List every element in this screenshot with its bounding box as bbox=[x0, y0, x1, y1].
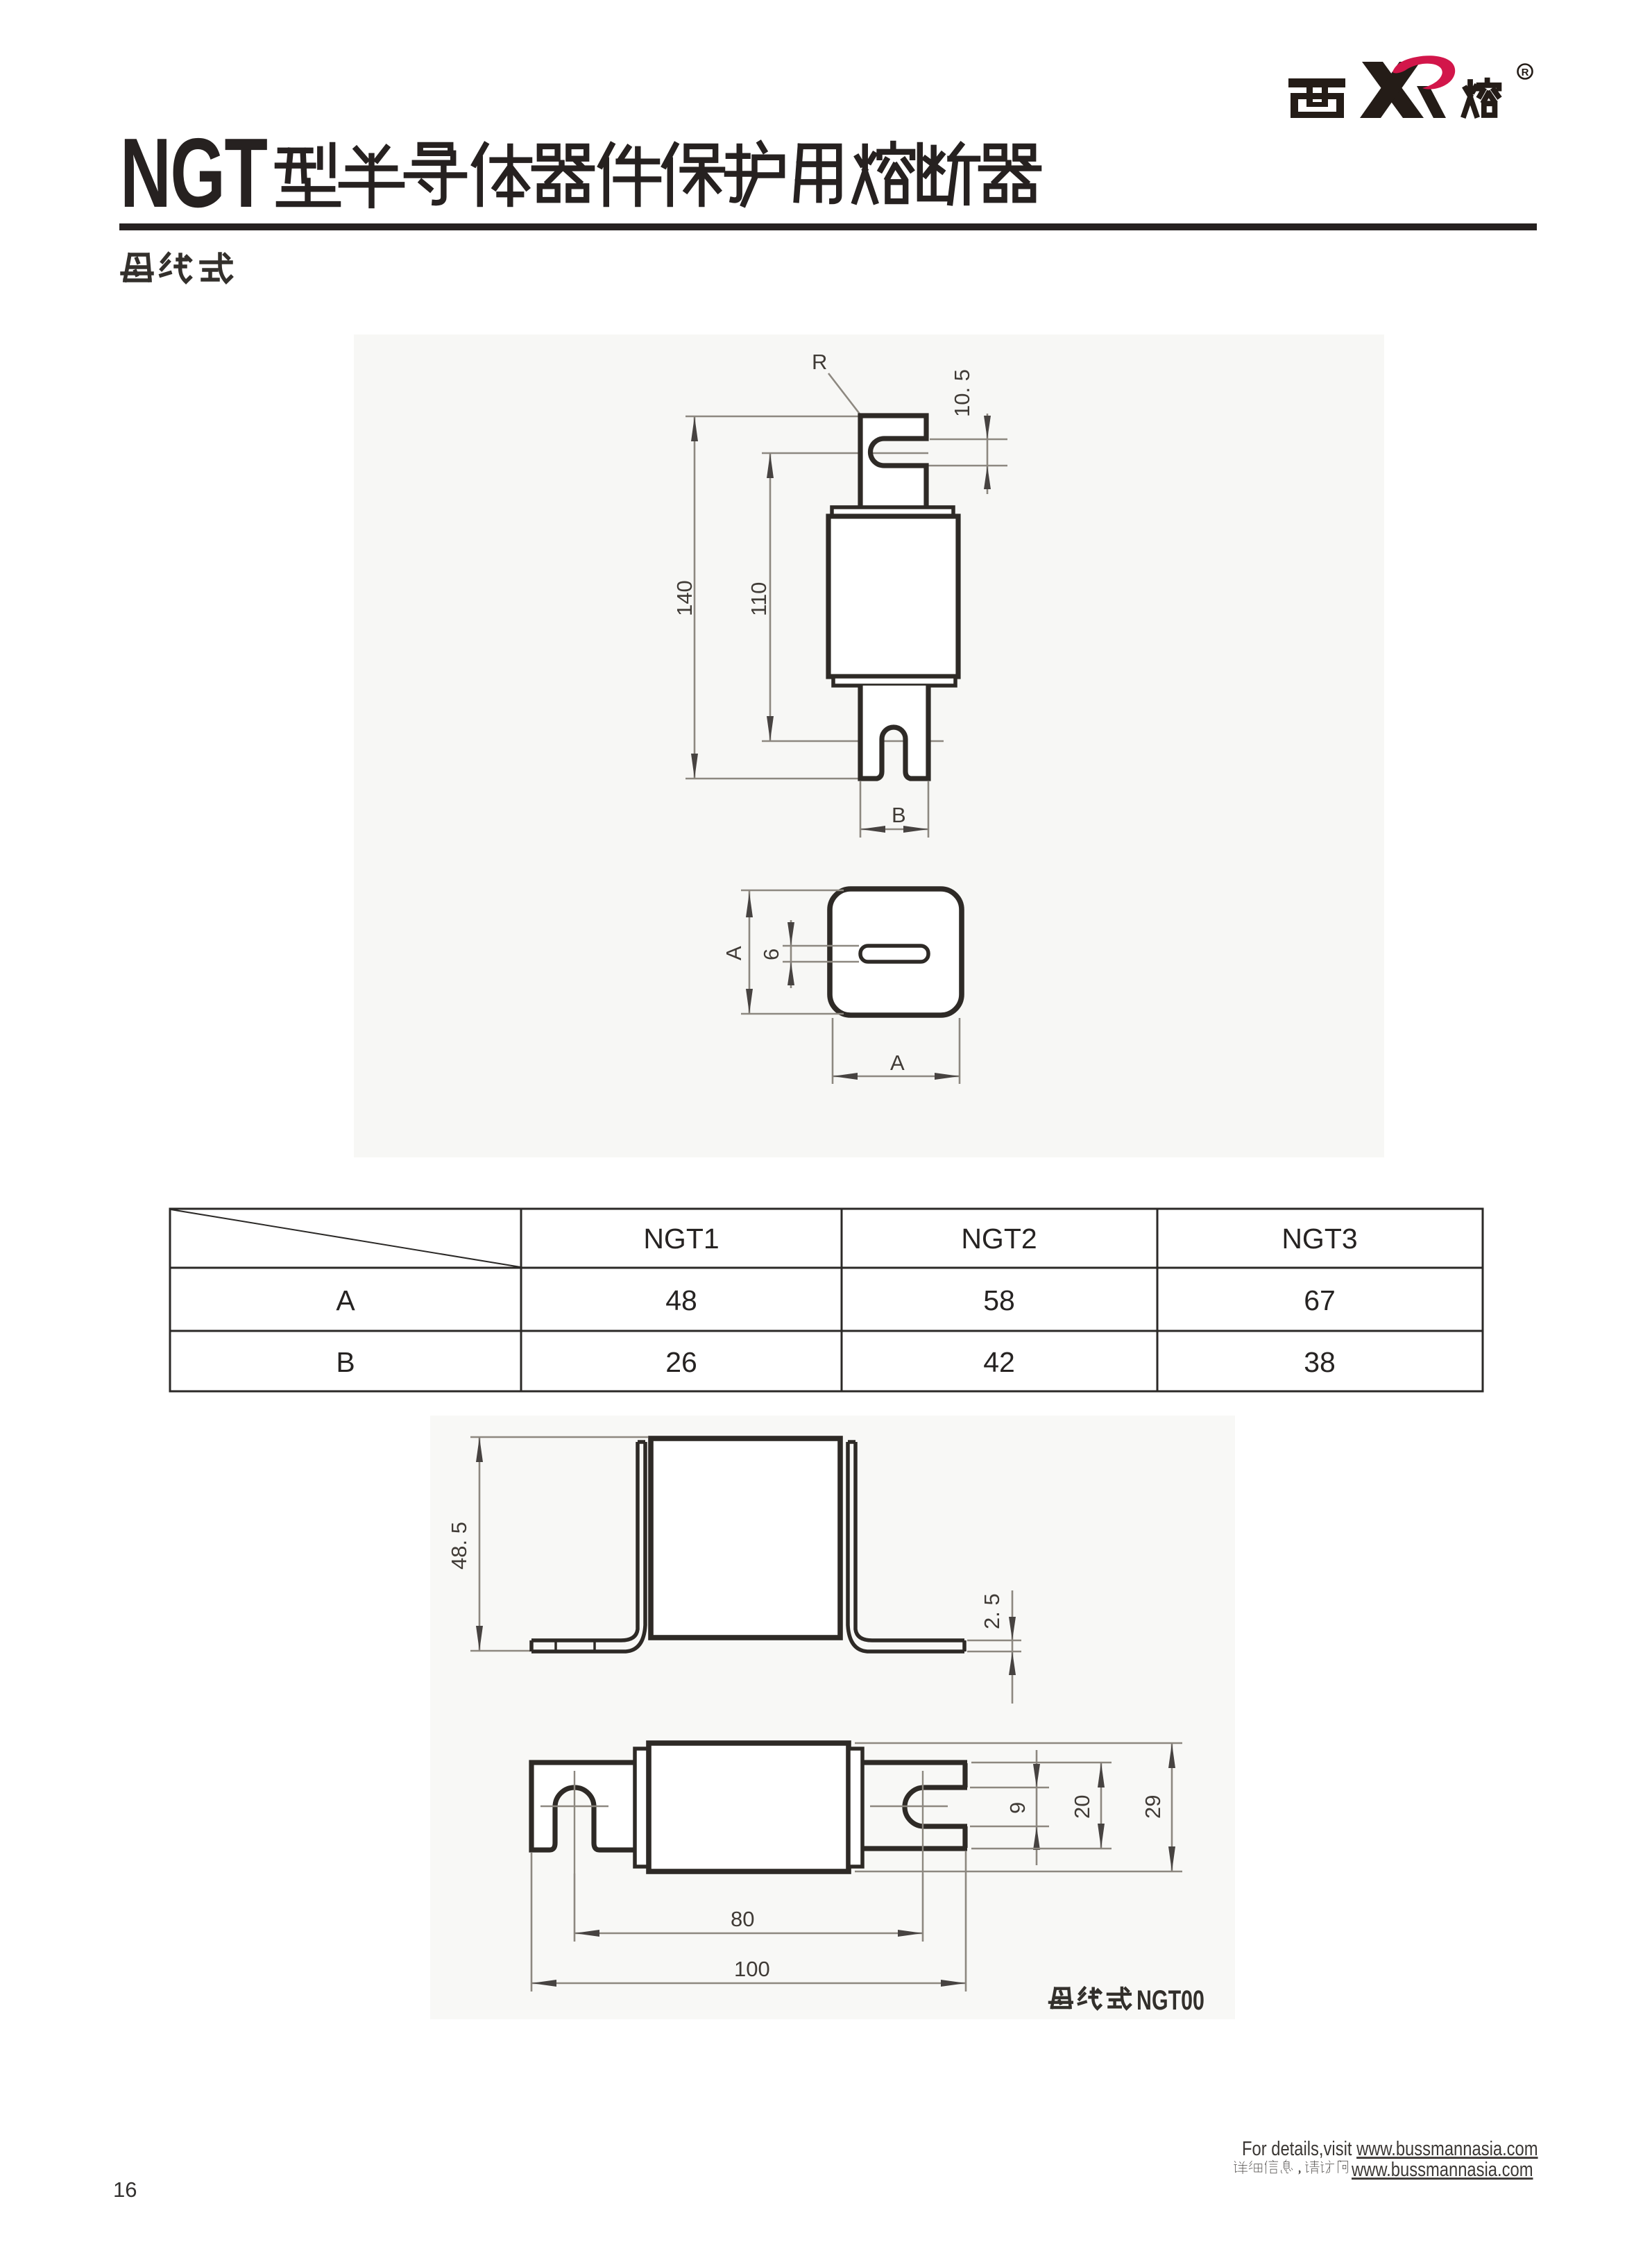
svg-text:67: 67 bbox=[1304, 1284, 1336, 1316]
svg-text:38: 38 bbox=[1304, 1346, 1336, 1378]
svg-text:NGT1: NGT1 bbox=[643, 1223, 719, 1255]
svg-text:110: 110 bbox=[747, 582, 771, 616]
svg-text:10. 5: 10. 5 bbox=[950, 369, 974, 417]
svg-text:NGT: NGT bbox=[120, 119, 267, 228]
svg-text:2. 5: 2. 5 bbox=[980, 1593, 1004, 1629]
svg-text:NGT2: NGT2 bbox=[961, 1223, 1037, 1255]
svg-text:A: A bbox=[890, 1051, 905, 1075]
svg-text:A: A bbox=[722, 946, 746, 960]
svg-text:For details,visit www.bussmann: For details,visit www.bussmannasia.com bbox=[1242, 2137, 1538, 2160]
svg-text:16: 16 bbox=[113, 2177, 137, 2202]
svg-text:42: 42 bbox=[983, 1346, 1015, 1378]
svg-text:R: R bbox=[812, 350, 827, 374]
svg-text:9: 9 bbox=[1005, 1802, 1030, 1814]
svg-text:100: 100 bbox=[734, 1957, 770, 1981]
svg-text:6: 6 bbox=[759, 949, 783, 960]
svg-text:NGT00: NGT00 bbox=[1136, 1985, 1204, 2016]
svg-text:NGT3: NGT3 bbox=[1281, 1223, 1357, 1255]
svg-text:80: 80 bbox=[731, 1907, 754, 1931]
svg-text:58: 58 bbox=[983, 1284, 1015, 1316]
svg-text:R: R bbox=[1522, 67, 1529, 78]
svg-text:A: A bbox=[336, 1284, 355, 1316]
svg-text:B: B bbox=[336, 1346, 355, 1378]
svg-text:www.bussmannasia.com: www.bussmannasia.com bbox=[1351, 2158, 1533, 2181]
svg-text:20: 20 bbox=[1070, 1795, 1094, 1819]
svg-text:26: 26 bbox=[665, 1346, 697, 1378]
svg-text:29: 29 bbox=[1141, 1795, 1165, 1819]
svg-text:48. 5: 48. 5 bbox=[447, 1522, 471, 1570]
svg-text:B: B bbox=[892, 803, 906, 827]
svg-text:48: 48 bbox=[665, 1284, 697, 1316]
svg-text:140: 140 bbox=[672, 580, 697, 616]
